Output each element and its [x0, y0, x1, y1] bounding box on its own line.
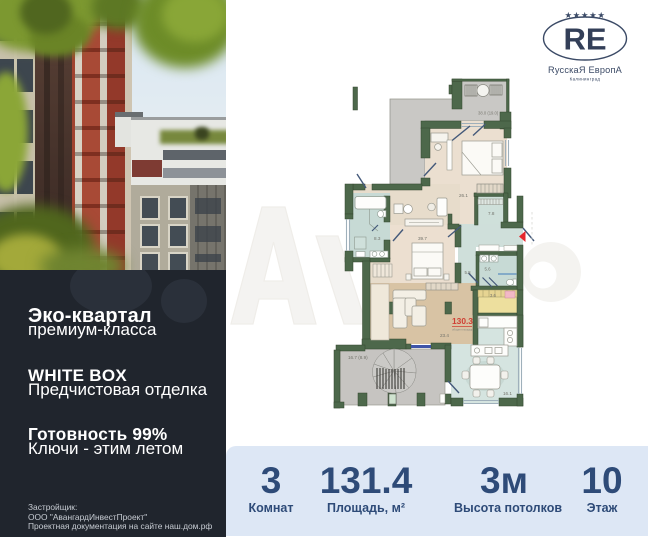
svg-text:23.4: 23.4 — [440, 333, 449, 338]
svg-text:RE: RE — [563, 22, 606, 57]
svg-text:5.8: 5.8 — [465, 270, 472, 275]
svg-text:130.3: 130.3 — [452, 316, 473, 326]
svg-text:16.7 (8.9): 16.7 (8.9) — [348, 355, 368, 360]
svg-text:5.6: 5.6 — [485, 267, 492, 272]
svg-text:Калининград: Калининград — [570, 77, 601, 82]
svg-text:39.7: 39.7 — [418, 236, 427, 241]
svg-text:3.6: 3.6 — [490, 293, 496, 298]
svg-text:26.1: 26.1 — [459, 193, 468, 198]
svg-text:16.1: 16.1 — [503, 391, 512, 396]
svg-text:общая площадь: общая площадь — [452, 328, 474, 332]
svg-text:7.8: 7.8 — [488, 211, 495, 216]
svg-text:38.0 (19.0): 38.0 (19.0) — [478, 111, 499, 116]
svg-text:8.3: 8.3 — [374, 236, 381, 241]
svg-text:RусскаЯ ЕвропА: RусскаЯ ЕвропА — [548, 65, 623, 75]
